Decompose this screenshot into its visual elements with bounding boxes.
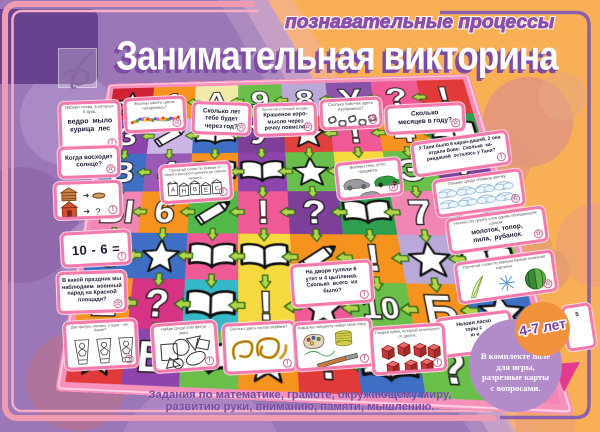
svg-text:➜: ➜ [83,191,90,200]
svg-text:А: А [171,188,175,194]
svg-text:➜: ➜ [83,207,90,216]
svg-text:Е: Е [204,188,208,194]
svg-text:Н: Н [182,189,187,195]
svg-text:В: В [193,187,197,193]
svg-text:?: ? [95,207,100,217]
